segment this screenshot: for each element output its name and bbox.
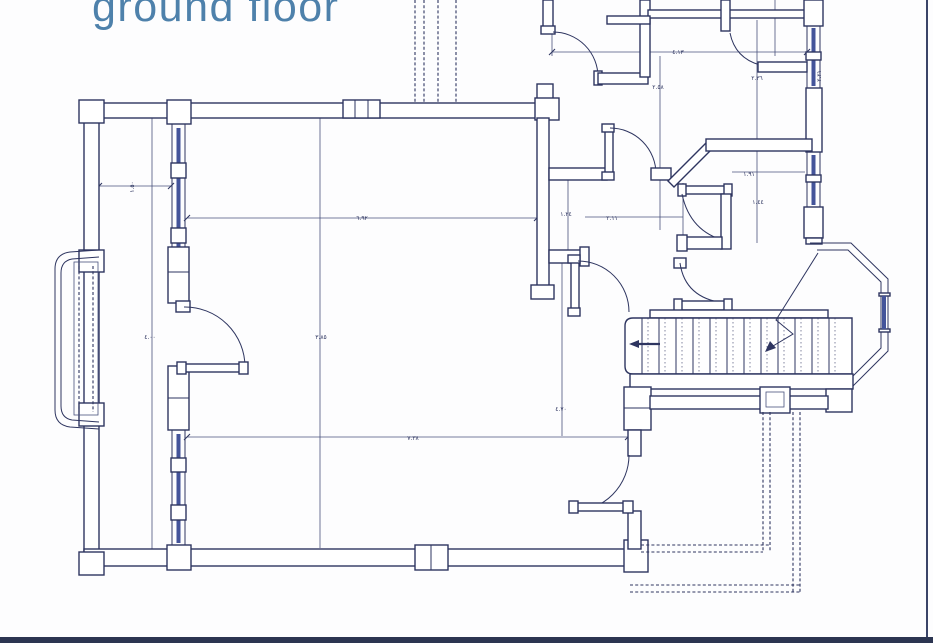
door-terrace-room	[569, 455, 633, 513]
dimension-lines	[96, 0, 810, 563]
dimension-label: ١.٥٠	[129, 181, 136, 193]
door-stairs	[674, 258, 732, 312]
dimension-label: ٦.٩٢	[356, 215, 368, 222]
door-left-room	[177, 307, 248, 374]
dimension-label: ٣.٨٥	[315, 334, 327, 341]
top-walls	[535, 0, 812, 120]
dimension-label: ٤.٠٠	[144, 334, 156, 341]
dimension-label: ٤.١٣	[672, 49, 684, 56]
dimension-label: ٢.٥٨	[652, 84, 664, 91]
window-wall-left	[168, 124, 248, 545]
drawing-sheet: ground floor	[0, 0, 933, 643]
dimension-label: ٤.٧٠	[555, 406, 567, 413]
sheet-border-bottom	[0, 637, 933, 643]
floor-plan-drawing: ٤.١٣ ٢.٥٨ ٢.٣٦ ١.٩١ ١.٤٤ ٦.٩٢ ١.٢٤ ٢.١١ …	[0, 0, 933, 643]
dimension-label: ١.٩١	[743, 171, 755, 178]
staircase	[624, 253, 853, 430]
sheet-border-right	[926, 0, 928, 637]
door-hall-lower	[568, 255, 629, 316]
dimension-label: ٢.٣٦	[751, 75, 763, 82]
dimension-label: ١.٤٤	[752, 199, 764, 206]
dimension-label: ٢.١١	[606, 215, 618, 222]
dimension-label: ٧.٣٨	[407, 435, 419, 442]
terrace-post	[760, 387, 790, 413]
dimension-label: ٢.٢١	[816, 70, 823, 82]
door-hall	[602, 124, 671, 180]
dimension-label: ١.٢٤	[560, 211, 572, 218]
chimney-flue	[415, 0, 456, 102]
right-wall	[804, 0, 823, 244]
